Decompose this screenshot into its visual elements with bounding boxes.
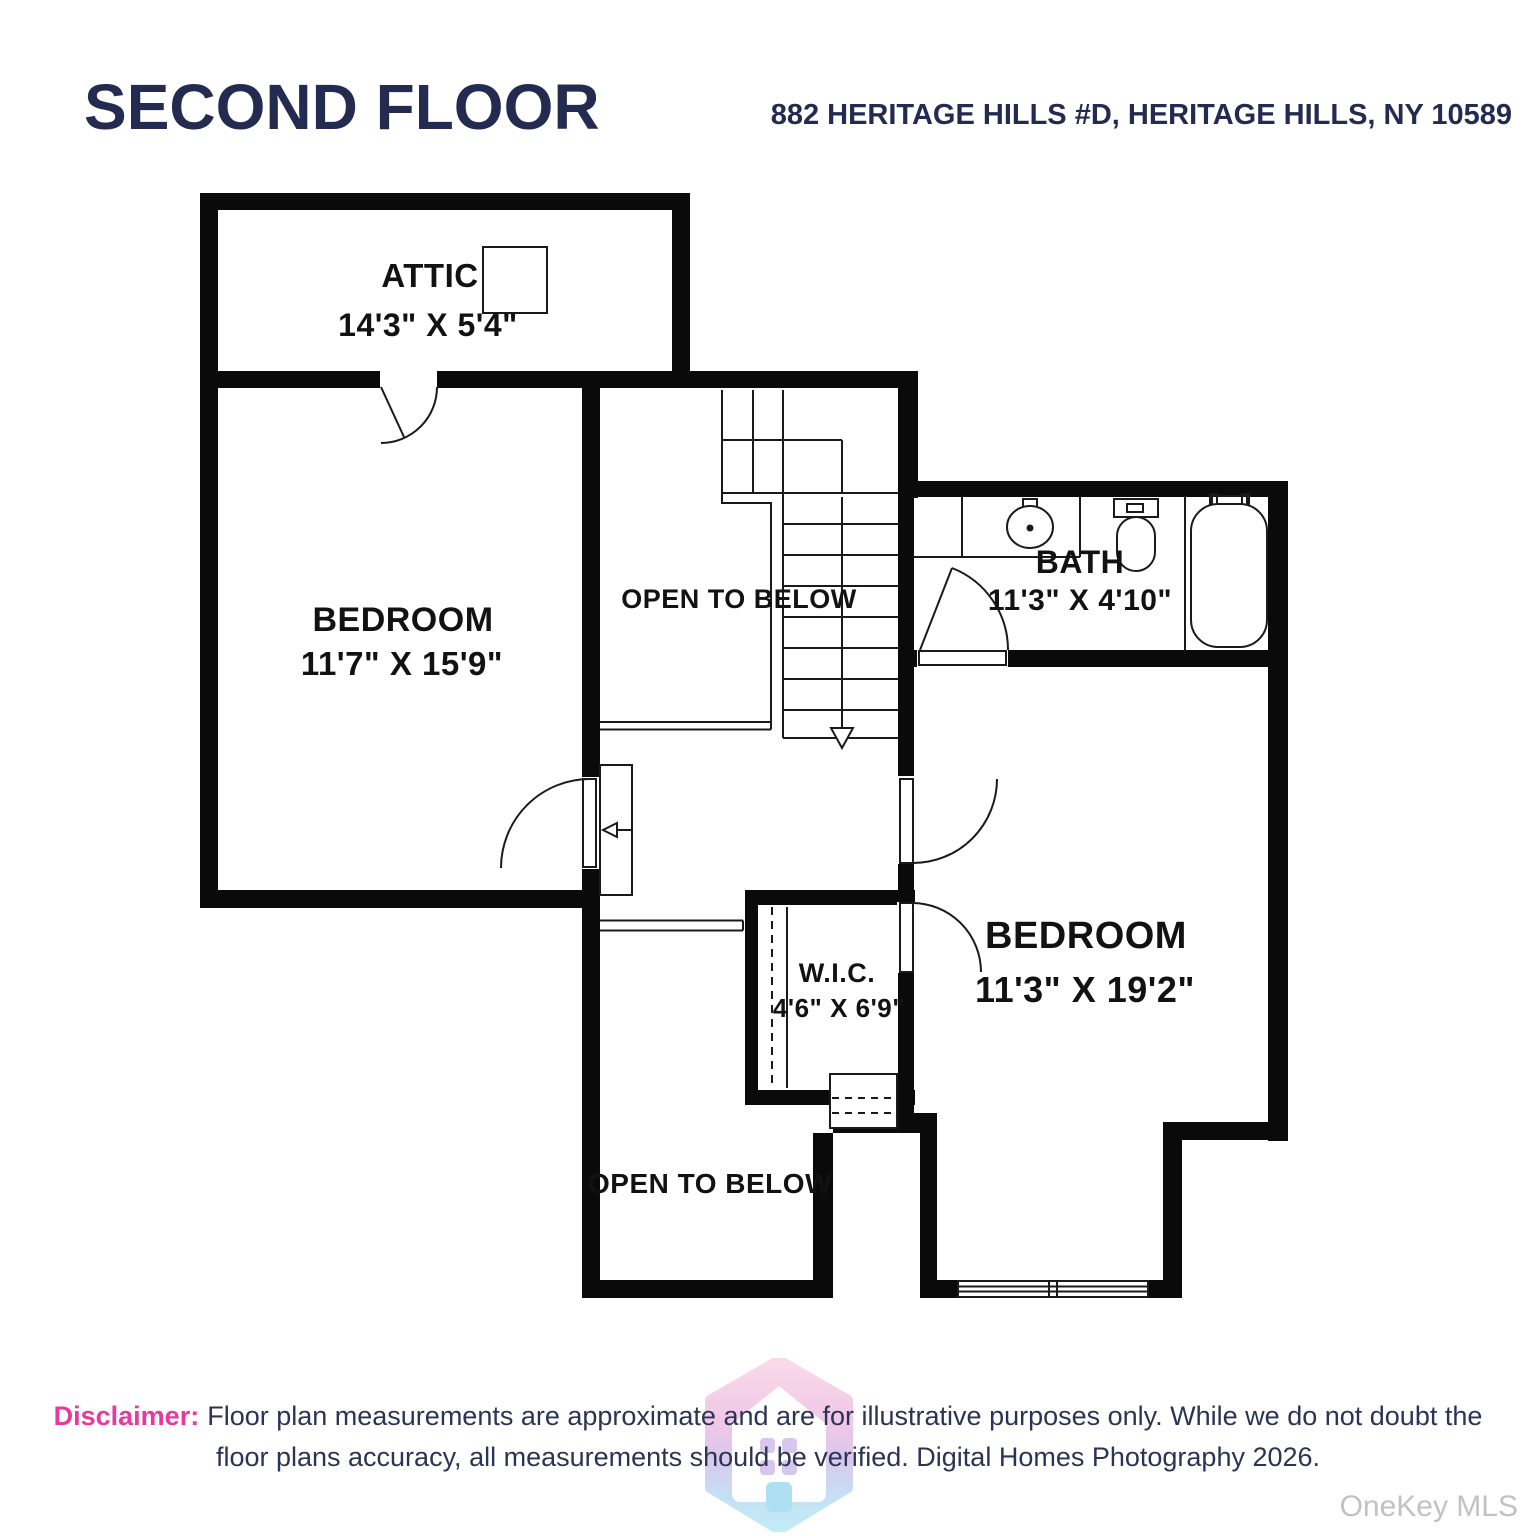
wic-door <box>900 903 981 972</box>
mls-watermark: OneKey MLS <box>1340 1490 1518 1524</box>
bedroom-right-label: BEDROOM <box>985 915 1187 957</box>
attic-dims: 14'3" X 5'4" <box>338 307 518 343</box>
bath-label: BATH <box>1036 544 1125 580</box>
open-below-center-label: OPEN TO BELOW <box>621 584 857 614</box>
attic-label: ATTIC <box>381 257 478 294</box>
bedroom-left-label: BEDROOM <box>312 601 493 639</box>
bathtub-icon <box>1191 494 1267 647</box>
attic-hatch <box>483 247 547 313</box>
wic-dims: 4'6" X 6'9" <box>773 993 905 1023</box>
bedroom-left-dims: 11'7" X 15'9" <box>301 645 503 682</box>
attic-door <box>381 387 437 443</box>
disclaimer-line2: floor plans accuracy, all measurements s… <box>0 1437 1536 1478</box>
disclaimer-label: Disclaimer: <box>54 1401 200 1431</box>
bath-dims: 11'3" X 4'10" <box>988 584 1172 617</box>
disclaimer: Disclaimer:Floor plan measurements are a… <box>0 1396 1536 1478</box>
wic-floor-opening <box>830 1074 897 1128</box>
sink-icon <box>1007 499 1053 548</box>
disclaimer-line1: Disclaimer:Floor plan measurements are a… <box>0 1396 1536 1437</box>
open-below-bottom-label: OPEN TO BELOW <box>588 1168 832 1199</box>
left-arrow-icon <box>603 823 617 837</box>
walls <box>200 193 1288 1298</box>
open-to-below-railing <box>600 493 771 931</box>
wic-label: W.I.C. <box>799 958 876 988</box>
hall-door-marker <box>600 765 632 895</box>
bedroom-right-dims: 11'3" X 19'2" <box>975 969 1195 1010</box>
disclaimer-text1: Floor plan measurements are approximate … <box>207 1401 1482 1431</box>
window <box>958 1281 1148 1297</box>
staircase <box>722 390 898 738</box>
floor-plan: ATTIC 14'3" X 5'4" BEDROOM 11'7" X 15'9"… <box>0 0 1536 1536</box>
